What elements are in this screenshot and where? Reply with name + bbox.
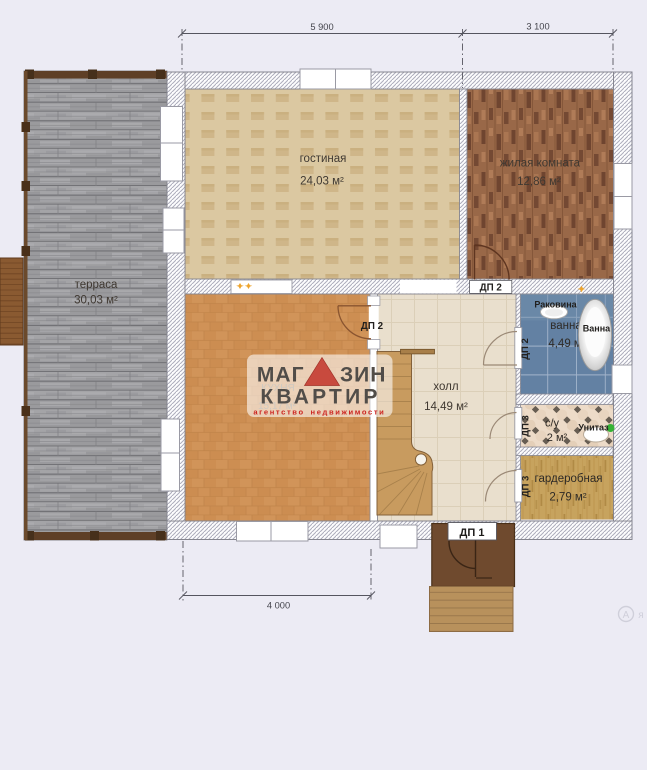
- svg-text:ДП 3: ДП 3: [521, 415, 532, 437]
- svg-text:гостиная: гостиная: [300, 153, 347, 165]
- svg-text:ДП 3: ДП 3: [521, 476, 532, 498]
- svg-text:агентство: агентство: [253, 408, 304, 417]
- svg-text:жилая комната: жилая комната: [500, 158, 581, 170]
- svg-text:недвижимости: недвижимости: [311, 408, 386, 417]
- svg-text:холл: холл: [433, 381, 458, 393]
- svg-text:МАГ: МАГ: [257, 364, 305, 387]
- svg-text:2,79 м²: 2,79 м²: [549, 492, 586, 504]
- svg-text:14,49 м²: 14,49 м²: [424, 401, 468, 413]
- svg-text:12,86 м²: 12,86 м²: [517, 176, 561, 188]
- svg-text:A: A: [623, 610, 630, 621]
- svg-text:ЗИН: ЗИН: [340, 364, 386, 387]
- svg-text:Раковина: Раковина: [534, 300, 577, 310]
- svg-text:30,03 м²: 30,03 м²: [74, 295, 118, 307]
- svg-text:с/у: с/у: [545, 418, 560, 430]
- svg-text:ванна: ванна: [550, 320, 582, 332]
- svg-text:5 900: 5 900: [310, 22, 333, 32]
- svg-text:ДП 2: ДП 2: [520, 338, 531, 360]
- svg-text:терраса: терраса: [75, 279, 118, 291]
- svg-text:Ванна: Ванна: [583, 324, 611, 334]
- svg-text:4 000: 4 000: [267, 601, 290, 611]
- svg-text:Унитаз: Унитаз: [578, 423, 609, 433]
- svg-text:я: я: [638, 610, 643, 621]
- svg-text:ДП 1: ДП 1: [460, 527, 485, 539]
- svg-text:24,03 м²: 24,03 м²: [300, 176, 344, 188]
- svg-text:ДП 2: ДП 2: [480, 283, 503, 294]
- svg-text:ДП 2: ДП 2: [361, 321, 384, 332]
- svg-text:гардеробная: гардеробная: [535, 473, 603, 485]
- svg-text:КВАРТИР: КВАРТИР: [260, 386, 380, 409]
- svg-text:3 100: 3 100: [526, 22, 549, 32]
- svg-text:2 м²: 2 м²: [547, 432, 568, 444]
